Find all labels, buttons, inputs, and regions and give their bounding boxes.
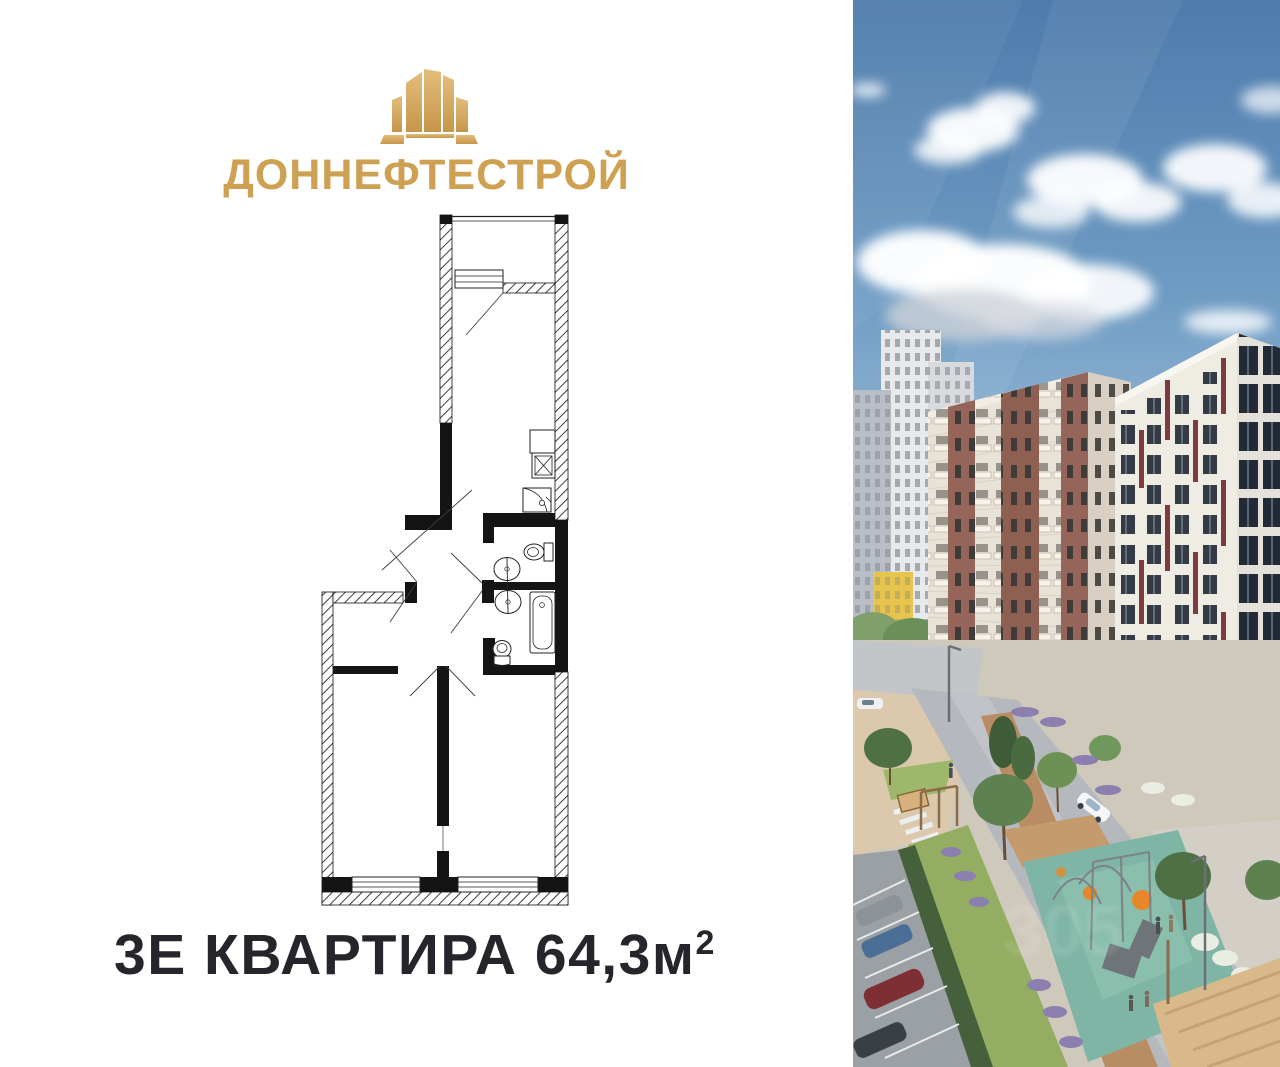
left-panel: ДОННЕФТЕСТРОЙ	[0, 0, 853, 1067]
plan-area-sup: 2	[696, 924, 716, 962]
flyer: ДОННЕФТЕСТРОЙ	[0, 0, 1280, 1067]
floor-plan	[318, 213, 572, 907]
brand-name: ДОННЕФТЕСТРОЙ	[0, 154, 853, 197]
brand-logo: ДОННЕФТЕСТРОЙ	[0, 58, 853, 197]
building-render: 305	[853, 0, 1280, 1067]
kitchen-fixtures	[523, 430, 555, 512]
plan-area: 64,3м	[535, 923, 696, 987]
balcony	[440, 215, 568, 335]
watermark: 305	[1003, 891, 1123, 971]
bathroom-fixtures	[493, 543, 555, 666]
plan-caption: 3Е КВАРТИРА 64,3м2	[114, 922, 716, 988]
plan-type: 3Е КВАРТИРА	[114, 923, 518, 987]
car-top-left	[857, 698, 883, 709]
brand-building-icon	[375, 58, 479, 150]
